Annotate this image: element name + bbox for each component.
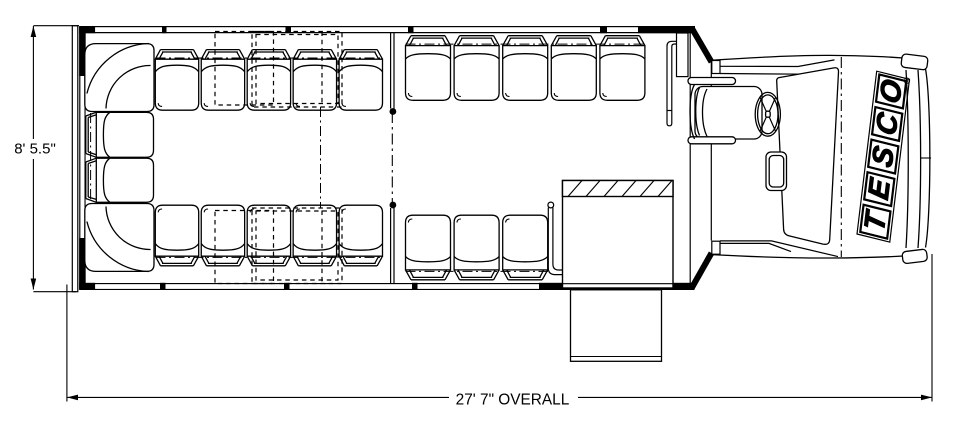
svg-text:8' 5.5": 8' 5.5" — [14, 141, 56, 158]
svg-text:27' 7" OVERALL: 27' 7" OVERALL — [456, 392, 570, 409]
